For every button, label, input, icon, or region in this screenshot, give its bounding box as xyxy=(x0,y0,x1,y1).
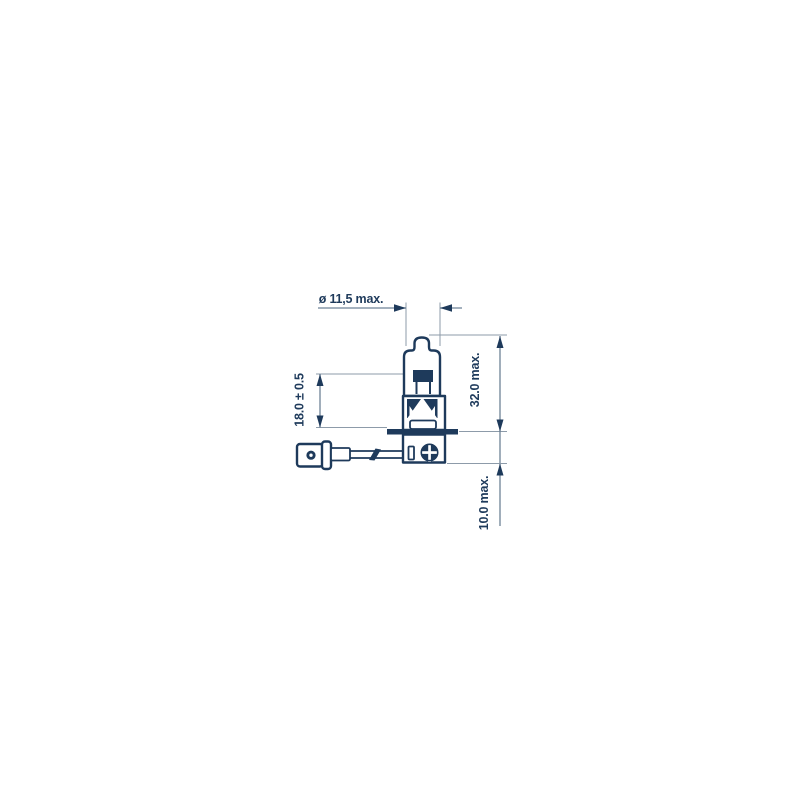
filament-height-label: 18.0 ± 0.5 xyxy=(293,373,307,427)
arrowhead-left-icon xyxy=(440,304,452,311)
wire-crimp xyxy=(331,448,350,461)
bulb-drawing xyxy=(297,338,458,470)
arrowhead-up-icon xyxy=(317,374,324,386)
arrowhead-up-icon xyxy=(497,336,504,348)
lug-hole-center xyxy=(309,454,312,457)
lug-collar xyxy=(322,442,331,470)
technical-drawing: ø 11,5 max. 18.0 ± 0.5 32.0 max. 10.0 ma… xyxy=(0,0,800,800)
pinch-seal xyxy=(410,421,436,430)
base-depth-label: 10.0 max. xyxy=(477,476,491,531)
arrowhead-up-icon xyxy=(497,464,504,476)
dimension-diameter: ø 11,5 max. xyxy=(318,292,462,346)
dimension-filament-height: 18.0 ± 0.5 xyxy=(293,373,405,428)
overall-length-label: 32.0 max. xyxy=(468,353,482,408)
arrowhead-down-icon xyxy=(497,420,504,432)
screw-slot-horizontal xyxy=(420,451,439,454)
filament xyxy=(413,370,433,382)
arrowhead-down-icon xyxy=(317,416,324,428)
arrowhead-right-icon xyxy=(394,304,406,311)
glass-envelope xyxy=(404,338,440,397)
terminal-lug-assembly xyxy=(297,442,405,470)
side-contact xyxy=(409,447,415,460)
diameter-label: ø 11,5 max. xyxy=(319,292,384,306)
bulb-dimension-diagram: ø 11,5 max. 18.0 ± 0.5 32.0 max. 10.0 ma… xyxy=(0,0,800,800)
dimension-base-depth: 10.0 max. xyxy=(447,464,507,531)
